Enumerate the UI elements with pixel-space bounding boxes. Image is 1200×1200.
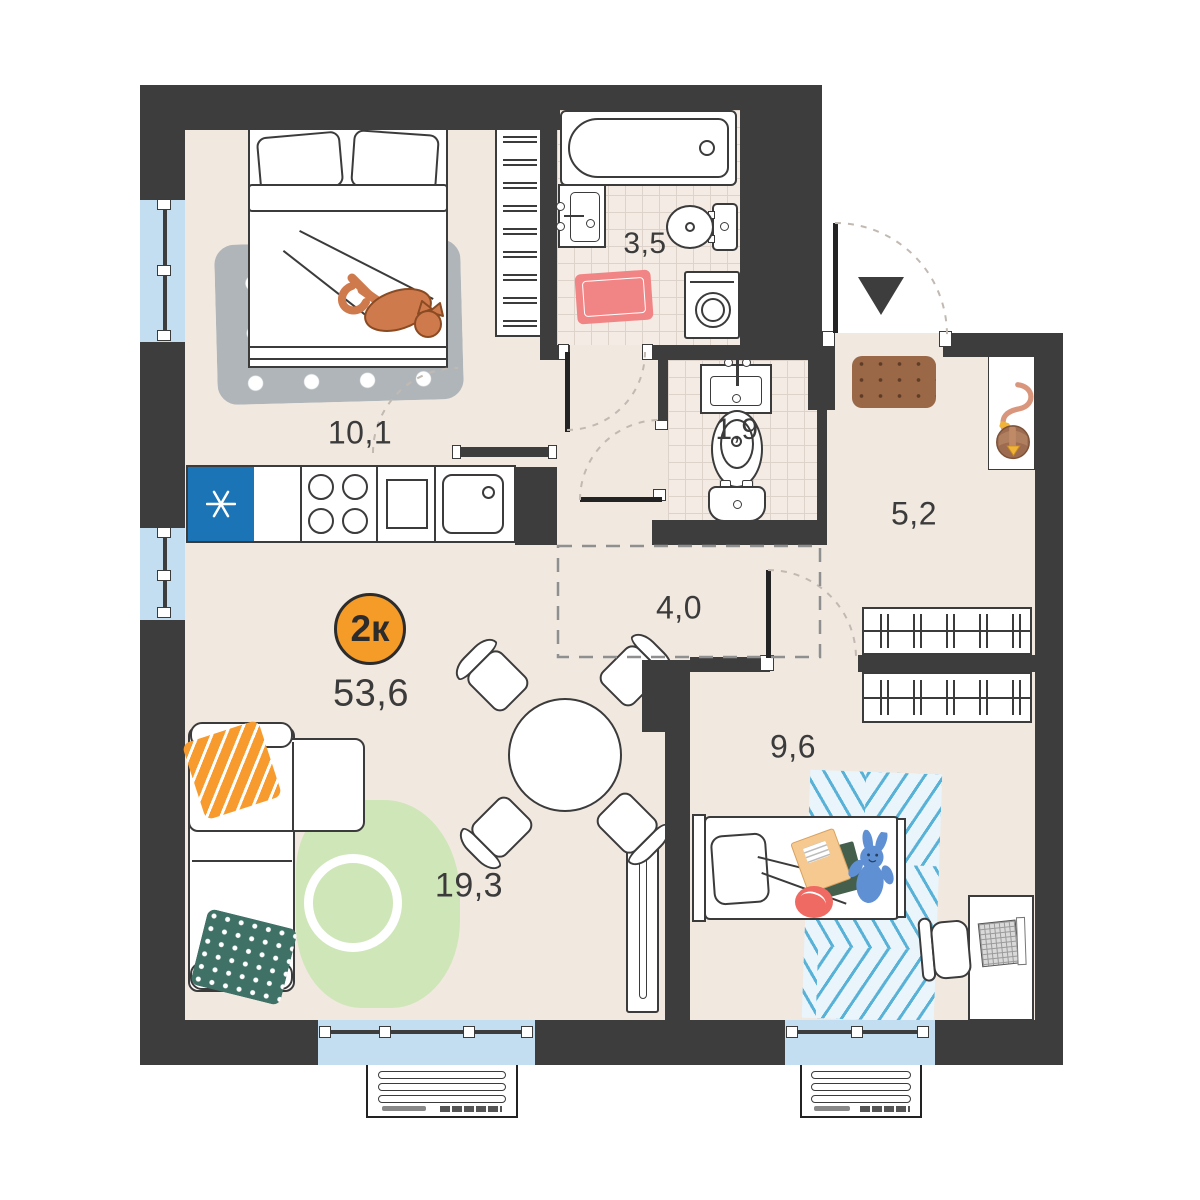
corridor-area-label: 4,0: [656, 590, 702, 627]
kids-room-area-label: 9,6: [770, 729, 816, 766]
door-swing-arcs: [0, 0, 1200, 1200]
hallway-area-label: 5,2: [891, 496, 937, 533]
living-area-label: 19,3: [435, 867, 503, 906]
total-area-label: 53,6: [333, 673, 409, 716]
type-badge-label: 2к: [350, 608, 389, 650]
floor-plan: 10,1 3,5 1,9 5,2 4,0 9,6 19,3 2к 53,6: [0, 0, 1200, 1200]
bedroom-area-label: 10,1: [328, 415, 392, 452]
bathroom-area-label: 3,5: [623, 227, 666, 261]
entrance-arrow-icon: [858, 277, 904, 315]
type-badge: 2к: [334, 593, 406, 665]
toilet-area-label: 1,9: [715, 413, 758, 447]
